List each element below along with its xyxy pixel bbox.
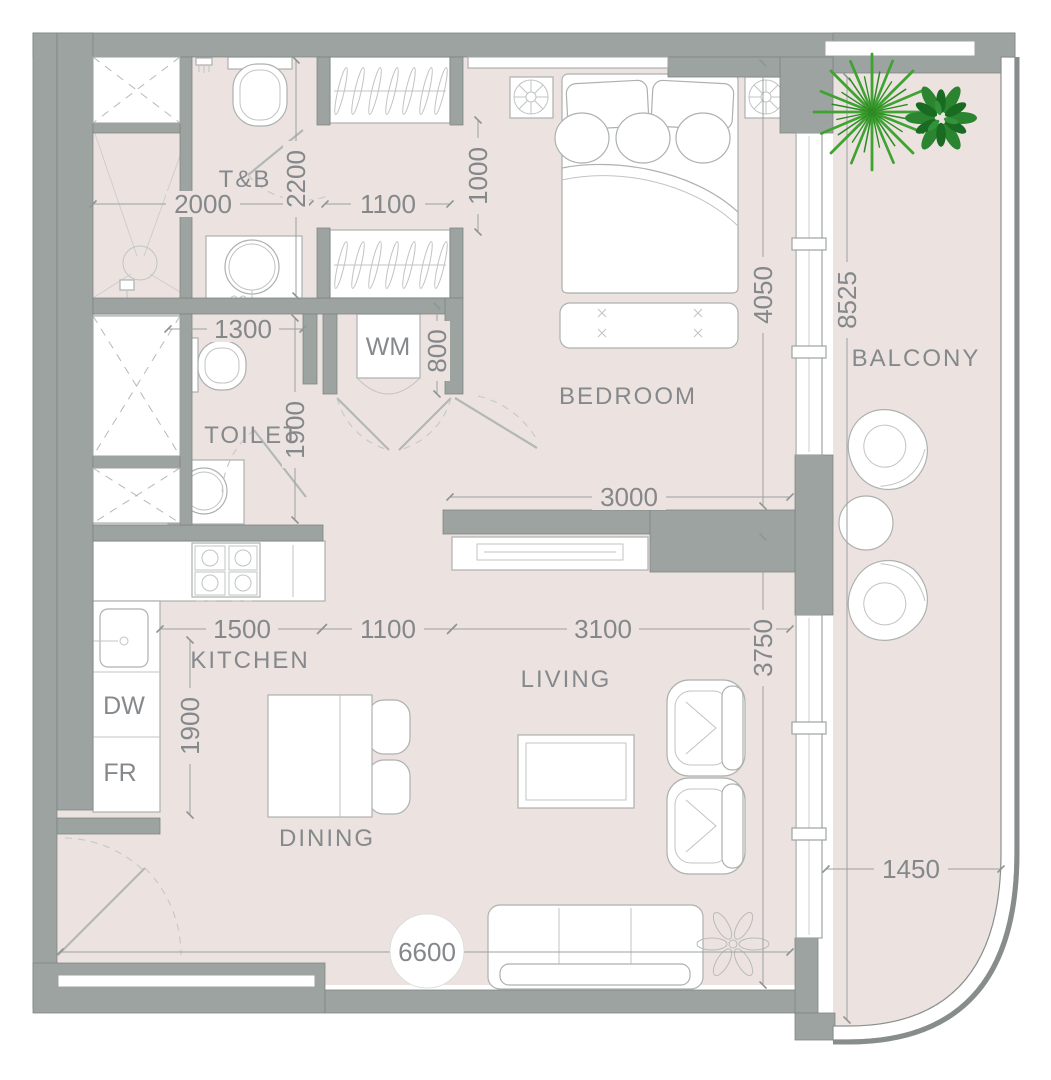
dim-hall-depth: 1000 xyxy=(463,147,493,205)
wall-toilet-side xyxy=(180,314,192,525)
label-living: LIVING xyxy=(521,666,612,693)
wardrobe-top xyxy=(330,57,450,123)
nightstand-left xyxy=(510,77,553,118)
dim-hall-width: 1100 xyxy=(360,189,416,219)
dim-tb-width: 2000 xyxy=(174,189,232,219)
label-kitchen: KITCHEN xyxy=(190,647,309,674)
dim-balcony-length: 8525 xyxy=(832,271,862,329)
bedroom-balcony-glazing xyxy=(792,133,826,455)
wall-bottom-left xyxy=(33,963,325,1013)
dim-bedroom-length: 4050 xyxy=(748,266,778,324)
label-dining: DINING xyxy=(279,825,375,852)
label-toilet: TOILET xyxy=(204,422,300,449)
dim-tb-length: 2200 xyxy=(281,150,311,208)
wall-bedroom-south xyxy=(443,510,650,534)
balcony-step xyxy=(795,1013,835,1040)
wall-nib xyxy=(450,57,463,125)
dining-chair xyxy=(368,760,410,814)
floor-plan-drawing: 2000 1100 2200 1000 1300 800 1900 3000 4… xyxy=(0,0,1051,1080)
dim-kitchen-run: 1500 xyxy=(213,614,271,644)
bedroom-window-sill xyxy=(468,57,668,68)
wall-duct-sep xyxy=(93,456,180,468)
wall-kitchen-south xyxy=(57,818,160,834)
wall-shower-side xyxy=(180,57,192,298)
bed xyxy=(555,74,738,293)
dim-wm-niche: 800 xyxy=(422,329,452,372)
wall-toilet-east xyxy=(303,314,317,384)
wall-nib xyxy=(317,57,330,125)
wall-left xyxy=(33,33,57,1008)
wall-left-poche xyxy=(57,33,93,810)
dim-living-length: 3750 xyxy=(748,619,778,677)
label-balcony: BALCONY xyxy=(852,345,981,372)
window-pier-top xyxy=(780,57,833,133)
dining-table xyxy=(268,695,372,817)
tb-wc xyxy=(228,57,292,126)
dim-unit-width: 6600 xyxy=(398,937,456,967)
wall-bottom-living xyxy=(325,990,808,1013)
wall-wm-left xyxy=(323,314,337,394)
dim-bedroom-width: 3000 xyxy=(600,482,658,512)
balcony-top-window xyxy=(825,41,975,56)
dim-kitchen-depth: 1900 xyxy=(175,697,205,755)
wall-tb-south xyxy=(93,298,460,314)
shower-mixer-icon xyxy=(120,280,134,290)
wall-nib xyxy=(450,228,463,298)
label-dishwasher: DW xyxy=(103,692,145,720)
label-tb: T&B xyxy=(219,166,272,193)
stove xyxy=(192,543,260,601)
dim-living-width: 3100 xyxy=(574,614,632,644)
tv-console xyxy=(452,537,648,570)
wall-nib xyxy=(317,228,330,298)
kitchen-sink xyxy=(93,609,148,667)
window-pier-middle xyxy=(795,455,833,615)
label-bedroom: BEDROOM xyxy=(559,383,697,410)
wardrobe-bottom xyxy=(330,230,450,298)
label-fridge: FR xyxy=(103,759,136,787)
bed-bench xyxy=(560,303,738,348)
wall-bedroom-south-block xyxy=(650,510,795,572)
dim-kitchen-pass: 1100 xyxy=(360,614,416,644)
coffee-table xyxy=(518,735,634,808)
wall-duct-sep xyxy=(93,123,180,133)
dining-chair xyxy=(368,700,410,754)
armchair xyxy=(667,778,745,874)
dim-toilet-width: 1300 xyxy=(214,314,272,344)
living-bottom-window xyxy=(58,975,315,987)
sofa xyxy=(488,905,703,989)
armchair xyxy=(667,680,745,776)
window-pier-bottom xyxy=(795,938,818,1013)
wall-toilet-south xyxy=(93,525,323,541)
dim-balcony-width: 1450 xyxy=(882,854,940,884)
living-balcony-glazing xyxy=(792,615,826,938)
floor-plan-page: 2000 1100 2200 1000 1300 800 1900 3000 4… xyxy=(0,0,1051,1080)
tb-vanity-sink xyxy=(206,236,302,304)
label-washing-machine: WM xyxy=(366,333,410,361)
